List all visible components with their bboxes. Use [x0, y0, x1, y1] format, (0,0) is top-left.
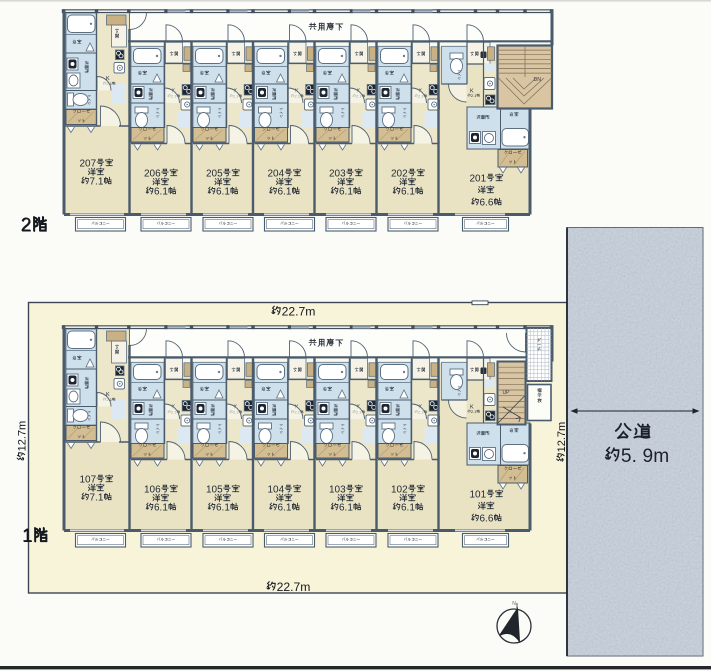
svg-text:12.7m: 12.7m	[556, 422, 568, 453]
svg-text:2: 2	[21, 216, 32, 237]
svg-text:104: 104	[268, 485, 285, 496]
svg-text:6.6: 6.6	[480, 514, 494, 525]
svg-text:205: 205	[206, 169, 223, 180]
svg-text:22.7m: 22.7m	[277, 580, 311, 594]
svg-text:6.1: 6.1	[216, 187, 230, 198]
svg-text:7.1: 7.1	[90, 493, 104, 504]
svg-text:6.1: 6.1	[401, 503, 415, 514]
svg-text:N: N	[512, 601, 516, 607]
svg-text:DN: DN	[534, 77, 542, 83]
svg-text:2.1: 2.1	[471, 409, 477, 414]
svg-text:203: 203	[329, 169, 346, 180]
svg-text:5. 9m: 5. 9m	[621, 446, 669, 467]
svg-text:UP: UP	[503, 390, 511, 396]
svg-text:106: 106	[144, 485, 161, 496]
svg-text:103: 103	[329, 485, 346, 496]
svg-text:107: 107	[80, 475, 97, 486]
svg-text:6.1: 6.1	[278, 187, 292, 198]
svg-text:105: 105	[206, 485, 223, 496]
svg-text:1: 1	[23, 525, 33, 546]
svg-text:6.1: 6.1	[278, 503, 292, 514]
svg-text:22.7m: 22.7m	[282, 305, 316, 319]
svg-text:201: 201	[470, 174, 487, 185]
svg-text:6.1: 6.1	[154, 187, 168, 198]
svg-text:6.6: 6.6	[480, 198, 494, 209]
svg-text:207: 207	[80, 159, 97, 170]
svg-text:202: 202	[391, 169, 408, 180]
svg-text:204: 204	[268, 169, 285, 180]
svg-text:206: 206	[144, 169, 161, 180]
svg-text:6.1: 6.1	[401, 187, 415, 198]
svg-text:6.1: 6.1	[216, 503, 230, 514]
svg-text:7.1: 7.1	[90, 177, 104, 188]
svg-text:12.7m: 12.7m	[17, 421, 29, 452]
svg-text:6.1: 6.1	[339, 503, 353, 514]
svg-text:6.1: 6.1	[339, 187, 353, 198]
svg-text:102: 102	[391, 485, 408, 496]
svg-text:6.1: 6.1	[154, 503, 168, 514]
svg-text:2.1: 2.1	[471, 93, 477, 98]
svg-text:101: 101	[470, 490, 487, 501]
